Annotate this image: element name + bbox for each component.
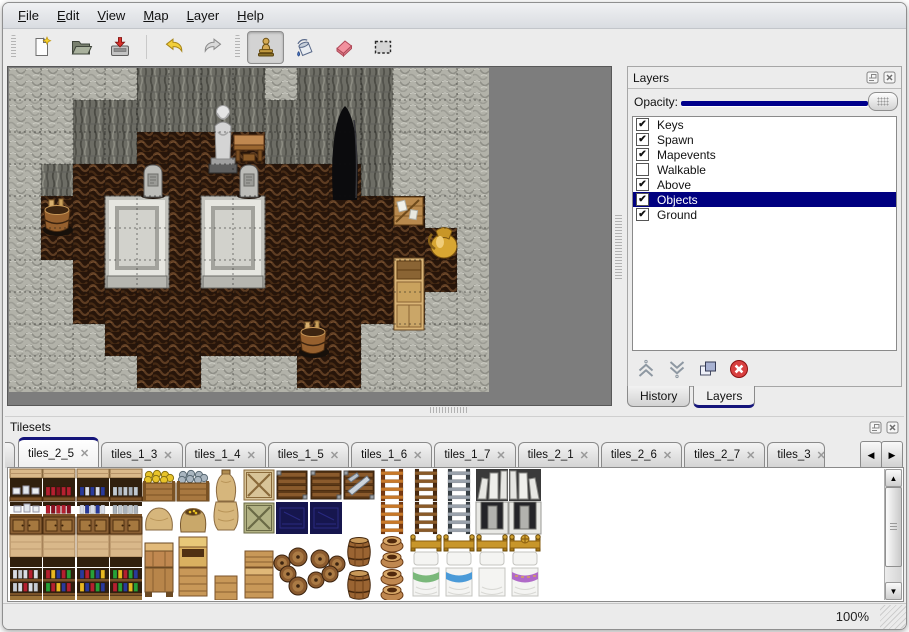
eraser-tool-icon xyxy=(332,35,356,59)
layer-label: Ground xyxy=(657,208,697,222)
tab-label: tiles_1_7 xyxy=(444,449,490,461)
menu-edit[interactable]: Edit xyxy=(48,6,88,25)
tab-label: tiles_2_7 xyxy=(694,449,740,461)
select-tool-icon xyxy=(371,35,395,59)
close-panel-icon[interactable] xyxy=(882,71,896,85)
tab-label: tiles_2_1 xyxy=(528,449,574,461)
layer-checkbox[interactable]: ✔ xyxy=(636,178,649,191)
layer-actions xyxy=(634,355,897,383)
new-file-button[interactable] xyxy=(23,31,60,64)
tileset-render xyxy=(9,468,885,600)
tileset-tab-tiles_2_6[interactable]: tiles_2_6✕ xyxy=(601,442,682,467)
screenshot-stage: FileEditViewMapLayerHelp Layers Opacity: xyxy=(0,0,909,632)
close-tab-icon[interactable]: ✕ xyxy=(163,449,172,462)
tab-label: tiles_1_6 xyxy=(361,449,407,461)
open-file-icon xyxy=(69,35,93,59)
tilesets-panel: Tilesets tiles_2_5✕tiles_1_3✕tiles_1_4✕t… xyxy=(5,416,904,605)
layer-checkbox[interactable]: ✔ xyxy=(636,148,649,161)
status-bar: 100% xyxy=(3,603,906,629)
duplicate-layer-icon xyxy=(697,358,719,380)
layer-row-mapevents[interactable]: ✔Mapevents xyxy=(633,147,896,162)
lower-layer-icon xyxy=(666,358,688,380)
tileset-tab-tiles_1_5[interactable]: tiles_1_5✕ xyxy=(268,442,349,467)
menu-file[interactable]: File xyxy=(9,6,48,25)
tab-label: tiles_3 xyxy=(777,449,810,461)
tileset-tabstrip: tiles_2_5✕tiles_1_3✕tiles_1_4✕tiles_1_5✕… xyxy=(18,437,860,467)
layer-label: Spawn xyxy=(657,133,694,147)
layer-checkbox[interactable]: ✔ xyxy=(636,133,649,146)
layer-row-ground[interactable]: ✔Ground xyxy=(633,207,896,222)
raise-layer-button[interactable] xyxy=(634,357,658,381)
tilesets-title: Tilesets xyxy=(10,420,51,434)
close-tab-icon[interactable]: ✕ xyxy=(746,449,755,462)
dock-tabs: HistoryLayers xyxy=(627,386,758,408)
layer-row-above[interactable]: ✔Above xyxy=(633,177,896,192)
opacity-label: Opacity: xyxy=(634,95,678,109)
fill-tool-button[interactable] xyxy=(286,31,323,64)
resize-grip[interactable] xyxy=(880,605,906,629)
float-panel-icon[interactable] xyxy=(868,420,882,434)
duplicate-layer-button[interactable] xyxy=(696,357,720,381)
select-tool-button[interactable] xyxy=(364,31,401,64)
layers-panel-titlebar: Layers xyxy=(628,67,901,89)
close-tab-icon[interactable]: ✕ xyxy=(580,449,589,462)
menu-bar: FileEditViewMapLayerHelp xyxy=(3,3,906,29)
close-tab-icon[interactable]: ✕ xyxy=(80,447,89,460)
tileset-vertical-scrollbar[interactable]: ▲ ▼ xyxy=(884,469,902,600)
zoom-level: 100% xyxy=(836,609,869,624)
close-panel-icon[interactable] xyxy=(885,420,899,434)
opacity-slider-handle[interactable] xyxy=(868,92,898,111)
layers-panel: Layers Opacity: ✔Keys✔Spawn✔MapeventsWal… xyxy=(627,66,902,387)
layer-row-spawn[interactable]: ✔Spawn xyxy=(633,132,896,147)
layer-row-objects[interactable]: ✔Objects xyxy=(633,192,896,207)
close-tab-icon[interactable]: ✕ xyxy=(496,449,505,462)
open-file-button[interactable] xyxy=(62,31,99,64)
toolbar-separator xyxy=(146,35,147,59)
eraser-tool-button[interactable] xyxy=(325,31,362,64)
tileset-tab-tiles_2_1[interactable]: tiles_2_1✕ xyxy=(518,442,599,467)
menu-map[interactable]: Map xyxy=(134,6,177,25)
undo-button[interactable] xyxy=(155,31,192,64)
redo-button[interactable] xyxy=(194,31,231,64)
menu-help[interactable]: Help xyxy=(228,6,273,25)
tileset-tab-tiles_1_7[interactable]: tiles_1_7✕ xyxy=(434,442,515,467)
tileset-canvas[interactable]: ▲ ▼ xyxy=(7,467,904,602)
layer-row-keys[interactable]: ✔Keys xyxy=(633,117,896,132)
opacity-row: Opacity: xyxy=(628,89,901,115)
scroll-down-button[interactable]: ▼ xyxy=(885,582,902,600)
toolbar xyxy=(3,29,906,65)
delete-layer-button[interactable] xyxy=(727,357,751,381)
layer-checkbox[interactable] xyxy=(636,163,649,176)
map-render xyxy=(9,68,489,392)
close-tab-icon[interactable]: ✕ xyxy=(663,449,672,462)
layer-label: Above xyxy=(657,178,691,192)
horizontal-splitter-handle[interactable] xyxy=(430,407,468,413)
layer-checkbox[interactable]: ✔ xyxy=(636,208,649,221)
new-file-icon xyxy=(30,35,54,59)
tileset-tab-tiles_1_4[interactable]: tiles_1_4✕ xyxy=(185,442,266,467)
lower-layer-button[interactable] xyxy=(665,357,689,381)
close-tab-icon[interactable]: ✕ xyxy=(247,449,256,462)
close-tab-icon[interactable]: ✕ xyxy=(817,449,826,462)
tileset-tab-tiles_2_7[interactable]: tiles_2_7✕ xyxy=(684,442,765,467)
tileset-tabbar: tiles_2_5✕tiles_1_3✕tiles_1_4✕tiles_1_5✕… xyxy=(5,437,904,467)
save-file-icon xyxy=(108,35,132,59)
tileset-tab-tiles_1_6[interactable]: tiles_1_6✕ xyxy=(351,442,432,467)
layer-row-walkable[interactable]: Walkable xyxy=(633,162,896,177)
undo-icon xyxy=(162,35,186,59)
dock-tab-history[interactable]: History xyxy=(627,386,690,407)
map-editor-window: FileEditViewMapLayerHelp Layers Opacity: xyxy=(2,2,907,630)
layer-checkbox[interactable]: ✔ xyxy=(636,118,649,131)
layers-panel-title: Layers xyxy=(633,71,669,85)
raise-layer-icon xyxy=(635,358,657,380)
tileset-tab-tiles_2_5[interactable]: tiles_2_5✕ xyxy=(18,437,99,467)
tab-label: tiles_2_6 xyxy=(611,449,657,461)
delete-layer-icon xyxy=(728,358,750,380)
menu-layer[interactable]: Layer xyxy=(178,6,229,25)
tab-label: tiles_1_3 xyxy=(111,449,157,461)
opacity-slider-track[interactable] xyxy=(681,101,868,106)
scrollbar-thumb[interactable] xyxy=(885,487,902,567)
vertical-splitter-handle[interactable] xyxy=(615,215,622,279)
float-panel-icon[interactable] xyxy=(865,71,879,85)
layer-label: Keys xyxy=(657,118,684,132)
layer-label: Objects xyxy=(657,193,698,207)
dock-tab-layers[interactable]: Layers xyxy=(693,386,755,408)
close-tab-icon[interactable]: ✕ xyxy=(330,449,339,462)
close-tab-icon[interactable]: ✕ xyxy=(413,449,422,462)
toolbar-grip[interactable] xyxy=(11,35,16,59)
layer-label: Walkable xyxy=(657,163,706,177)
tab-label: tiles_1_5 xyxy=(278,449,324,461)
tab-label: tiles_1_4 xyxy=(195,449,241,461)
tab-label: tiles_2_5 xyxy=(28,448,74,460)
fill-tool-icon xyxy=(293,35,317,59)
redo-icon xyxy=(201,35,225,59)
tab-scroll-right-button[interactable]: ▶ xyxy=(881,441,903,469)
toolbar-grip[interactable] xyxy=(235,35,240,59)
stamp-tool-button[interactable] xyxy=(247,31,284,64)
menu-view[interactable]: View xyxy=(88,6,134,25)
tileset-tab-tiles_1_3[interactable]: tiles_1_3✕ xyxy=(101,442,182,467)
tilesets-titlebar: Tilesets xyxy=(5,417,904,437)
tileset-tab-partial[interactable] xyxy=(5,442,15,468)
stamp-tool-icon xyxy=(254,35,278,59)
save-file-button[interactable] xyxy=(101,31,138,64)
tab-scroll-left-button[interactable]: ◀ xyxy=(860,441,882,469)
layer-list: ✔Keys✔Spawn✔MapeventsWalkable✔Above✔Obje… xyxy=(632,116,897,351)
layer-label: Mapevents xyxy=(657,148,716,162)
map-canvas[interactable] xyxy=(7,66,612,406)
layer-checkbox[interactable]: ✔ xyxy=(636,193,649,206)
tileset-tab-tiles_3[interactable]: tiles_3✕ xyxy=(767,442,825,467)
scroll-up-button[interactable]: ▲ xyxy=(885,469,902,487)
